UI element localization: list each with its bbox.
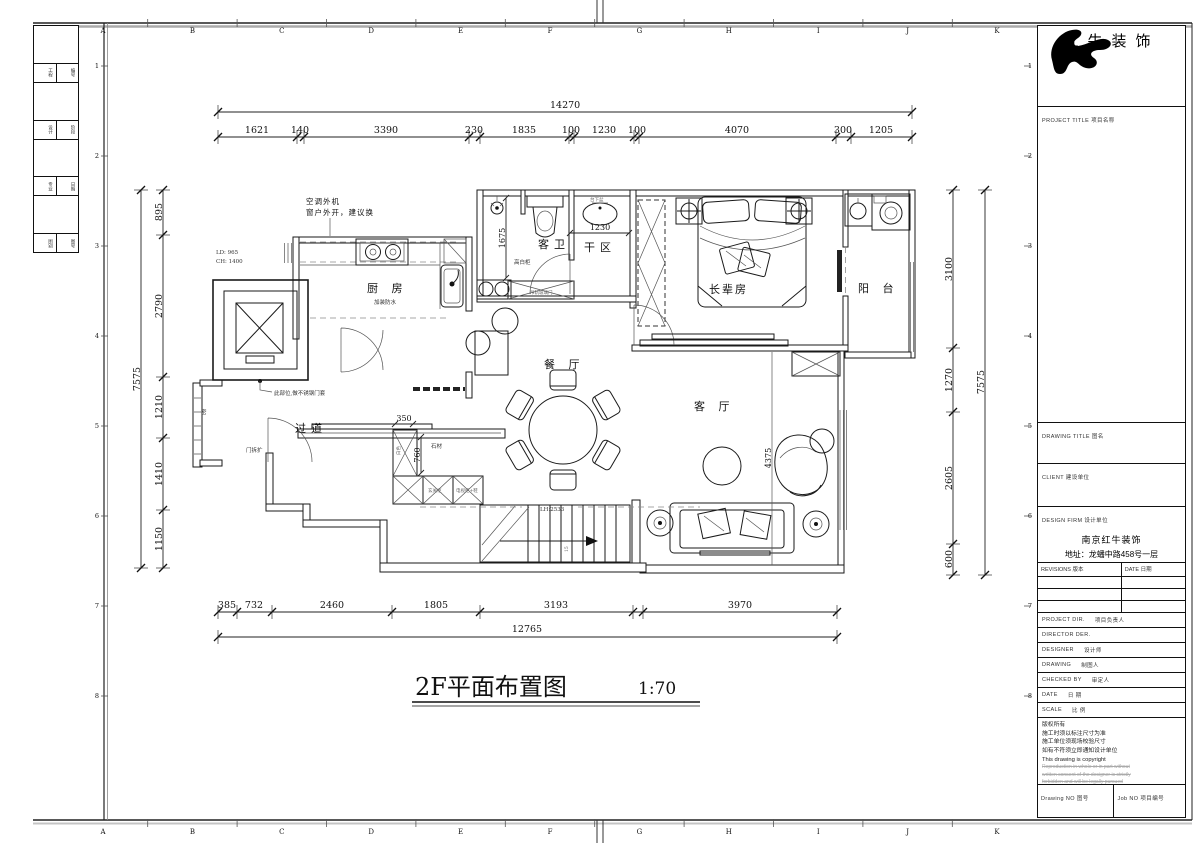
svg-text:350: 350 — [396, 414, 411, 423]
project-title-section: PROJECT TITLE 项目名称 — [1038, 107, 1185, 423]
project-dir-row: PROJECT DIR.项目负责人 — [1038, 613, 1185, 628]
svg-text:C: C — [279, 27, 284, 35]
director-row: DIRECTOR DER. — [1038, 628, 1185, 643]
stair-direction-arrow — [586, 536, 598, 546]
side-table-icon — [810, 429, 834, 453]
drawing-title-section: DRAWING TITLE 图名 — [1038, 423, 1185, 464]
svg-text:I: I — [817, 828, 820, 836]
coffee-table-icon — [703, 447, 741, 485]
svg-text:1270: 1270 — [944, 368, 955, 392]
cabinet2-label: 电视柜+鞋 — [456, 487, 478, 494]
svg-text:2605: 2605 — [944, 466, 955, 490]
svg-text:4070: 4070 — [725, 125, 749, 136]
washing-machine-icon — [872, 194, 910, 230]
room-label-dining: 餐 厅 — [544, 357, 585, 371]
dining-room — [466, 308, 621, 490]
svg-text:A: A — [99, 27, 106, 35]
balcony-sink-icon — [845, 194, 872, 226]
ac-note: 空调外机 — [306, 196, 340, 206]
svg-text:K: K — [994, 828, 1000, 836]
step-count: 15 — [564, 546, 570, 552]
svg-text:D: D — [368, 27, 374, 35]
ld-note: LD: 965 — [216, 250, 239, 256]
svg-text:895: 895 — [154, 203, 165, 221]
floor-lamp-icon — [647, 510, 673, 536]
sofa — [670, 503, 794, 555]
wardrobe — [638, 200, 665, 326]
svg-text:1150: 1150 — [154, 527, 165, 551]
checked-row: CHECKED BY审定人 — [1038, 673, 1185, 688]
svg-text:7575: 7575 — [132, 367, 143, 391]
svg-text:385: 385 — [218, 600, 236, 611]
hatched-cabinet — [792, 352, 840, 376]
svg-text:K: K — [994, 27, 1000, 35]
ch-note: CH: 1400 — [216, 259, 243, 265]
room-label-living: 客 厅 — [694, 399, 735, 413]
svg-text:D: D — [368, 828, 374, 836]
svg-text:A: A — [99, 828, 106, 836]
floor-plan-canvas: AABBCCDDEEFFGGHHIIJJKK1122334455667788 — [0, 0, 1200, 843]
toilet-icon — [527, 196, 563, 237]
room-label-dry: 干区 — [584, 241, 616, 254]
svg-text:7575: 7575 — [976, 370, 987, 394]
tall-cabinet-note: 高白柜 — [514, 258, 531, 266]
svg-text:1835: 1835 — [512, 125, 536, 136]
door-expand-note: 门拆扩 — [246, 446, 263, 454]
svg-text:2: 2 — [95, 152, 99, 160]
svg-text:B: B — [190, 828, 195, 836]
design-firm-name: 南京红牛装饰 — [1042, 533, 1181, 546]
svg-text:3390: 3390 — [374, 125, 398, 136]
cabinet1-label: 玄关柜 — [428, 487, 442, 494]
svg-text:J: J — [905, 828, 909, 836]
lounge-chair — [775, 435, 827, 496]
svg-text:8: 8 — [95, 692, 99, 700]
svg-text:732: 732 — [245, 600, 263, 611]
svg-text:H: H — [726, 828, 732, 836]
svg-text:7: 7 — [95, 602, 99, 610]
svg-text:J: J — [905, 27, 909, 35]
design-firm-address: 地址：龙蟠中路458号一层 — [1042, 549, 1181, 560]
date-row: DATE日 期 — [1038, 688, 1185, 703]
title-block: 红牛装饰 PROJECT TITLE 项目名称 DRAWING TITLE 图名… — [1037, 25, 1186, 818]
svg-text:4375: 4375 — [764, 448, 773, 468]
svg-text:230: 230 — [465, 125, 483, 136]
svg-text:1205: 1205 — [869, 125, 893, 136]
living-room — [640, 334, 840, 565]
room-label-corridor: 过道 — [295, 421, 327, 435]
svg-text:4: 4 — [95, 332, 99, 340]
svg-text:300: 300 — [834, 125, 852, 136]
drawing-title: 2F平面布置图 1:70 — [412, 673, 700, 706]
svg-text:1621: 1621 — [245, 125, 269, 136]
stove-burner-icon — [366, 245, 401, 260]
designer-row: DESIGNER设计师 — [1038, 643, 1185, 658]
number-boxes: Drawing NO 图号 Job NO 项目编号 — [1038, 785, 1185, 817]
floor-lamp-icon — [803, 511, 829, 537]
generated-rulers-dims: AABBCCDDEEFFGGHHIIJJKK1122334455667788 — [95, 19, 1032, 836]
svg-text:1230: 1230 — [590, 223, 610, 232]
tv-console — [640, 334, 788, 346]
svg-text:1: 1 — [95, 62, 99, 70]
plan-title: 2F平面布置图 — [415, 673, 567, 701]
svg-text:6: 6 — [95, 512, 99, 520]
kitchen-note: 加装防水 — [374, 298, 397, 306]
svg-text:H: H — [726, 27, 732, 35]
balcony — [845, 194, 910, 230]
svg-text:100: 100 — [562, 125, 580, 136]
svg-text:1805: 1805 — [424, 600, 448, 611]
svg-text:F: F — [548, 27, 553, 35]
kitchen — [300, 239, 466, 389]
drawing-row: DRAWING制图人 — [1038, 658, 1185, 673]
design-firm-section: DESIGN FIRM 设计单位 南京红牛装饰 地址：龙蟠中路458号一层 — [1038, 507, 1185, 563]
window-note: 窗户外开，建议换 — [306, 207, 374, 217]
svg-text:760: 760 — [413, 447, 422, 462]
revisions-table: REVISIONS 版本 DATE 日期 — [1038, 563, 1185, 613]
shower-head-icon — [491, 196, 503, 214]
svg-text:G: G — [637, 828, 643, 836]
white-note: 白色 — [395, 446, 402, 455]
svg-text:I: I — [817, 27, 820, 35]
svg-text:140: 140 — [291, 125, 309, 136]
svg-text:2790: 2790 — [154, 294, 165, 318]
svg-text:2460: 2460 — [320, 600, 344, 611]
room-label-elder: 长辈房 — [709, 282, 748, 296]
kitchen-door-swing — [341, 328, 383, 372]
svg-text:3193: 3193 — [544, 600, 568, 611]
svg-text:E: E — [458, 27, 463, 35]
svg-text:B: B — [190, 27, 195, 35]
svg-text:C: C — [279, 828, 284, 836]
room-label-kitchen: 厨 房 — [367, 282, 408, 295]
room-label-bath: 客卫 — [538, 237, 570, 251]
svg-text:600: 600 — [944, 550, 955, 568]
dining-table-icon — [529, 396, 597, 464]
stone-note: 石材 — [431, 442, 443, 450]
svg-text:1210: 1210 — [154, 395, 165, 419]
basin-note: 台下盆 — [590, 196, 604, 203]
svg-text:3: 3 — [95, 242, 99, 250]
headroom-note: LH:2533 — [540, 507, 565, 513]
room-labels: 厨 房 客卫 干区 长辈房 阳 台 餐 厅 客 厅 过道 — [295, 237, 899, 435]
svg-text:5: 5 — [95, 422, 99, 430]
svg-text:100: 100 — [628, 125, 646, 136]
elder-bedroom — [634, 197, 846, 345]
seal-note: 密 — [201, 408, 207, 416]
svg-text:3100: 3100 — [944, 257, 955, 281]
binding-strip: 工程编号 设计阶段 专业日期 图别图号 — [33, 25, 79, 253]
svg-text:G: G — [637, 27, 643, 35]
drawing-sheet: AABBCCDDEEFFGGHHIIJJKK1122334455667788 — [0, 0, 1200, 843]
staircase — [420, 505, 700, 562]
glass-door-note: 吊轨玻璃门 — [530, 289, 553, 296]
scale-row: SCALE比 例 — [1038, 703, 1185, 718]
copyright-notes: 版权所有 施工时须以标注尺寸为准 施工单位须现场校验尺寸 如有不符须立即通知设计… — [1038, 718, 1185, 785]
svg-text:1230: 1230 — [592, 125, 616, 136]
client-section: CLIENT 建设单位 — [1038, 464, 1185, 507]
room-label-balcony: 阳 台 — [858, 281, 899, 295]
svg-text:1675: 1675 — [498, 228, 507, 248]
svg-text:3970: 3970 — [728, 600, 752, 611]
balcony-door-leaf — [837, 250, 842, 292]
rednow-bull-logo-icon — [1038, 26, 1116, 82]
plan-scale: 1:70 — [638, 679, 676, 699]
svg-text:F: F — [548, 828, 553, 836]
kitchen-sink-icon — [441, 265, 463, 307]
svg-text:12765: 12765 — [512, 624, 542, 635]
dry-area-basin-icon — [583, 203, 617, 225]
bath-door-swing — [530, 254, 570, 294]
svg-text:14270: 14270 — [550, 100, 580, 111]
brand-area: 红牛装饰 — [1038, 26, 1185, 107]
svg-text:E: E — [458, 828, 463, 836]
svg-text:1410: 1410 — [154, 462, 165, 486]
steel-note: 此部位,做不锈钢门套 — [274, 389, 326, 397]
